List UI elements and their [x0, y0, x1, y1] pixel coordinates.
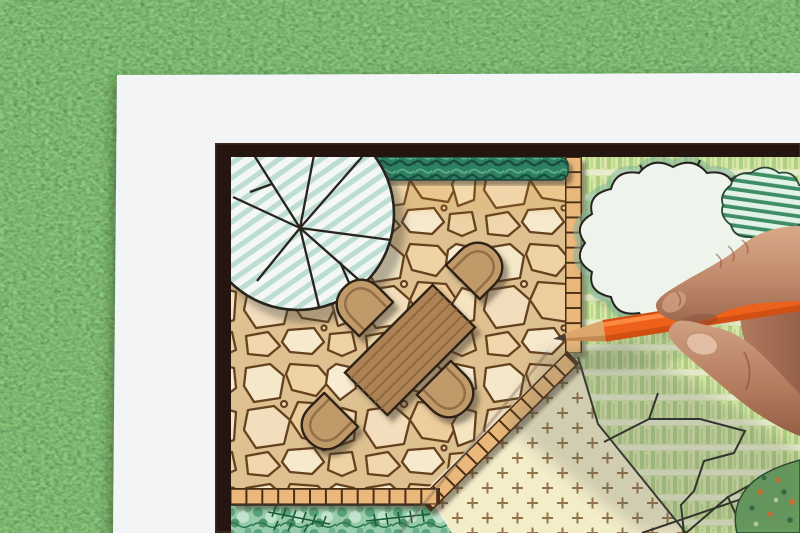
photo-garden-plan — [0, 0, 800, 533]
tile-path-horizontal — [231, 488, 440, 505]
hedge — [366, 157, 568, 180]
plan-content — [202, 118, 800, 533]
